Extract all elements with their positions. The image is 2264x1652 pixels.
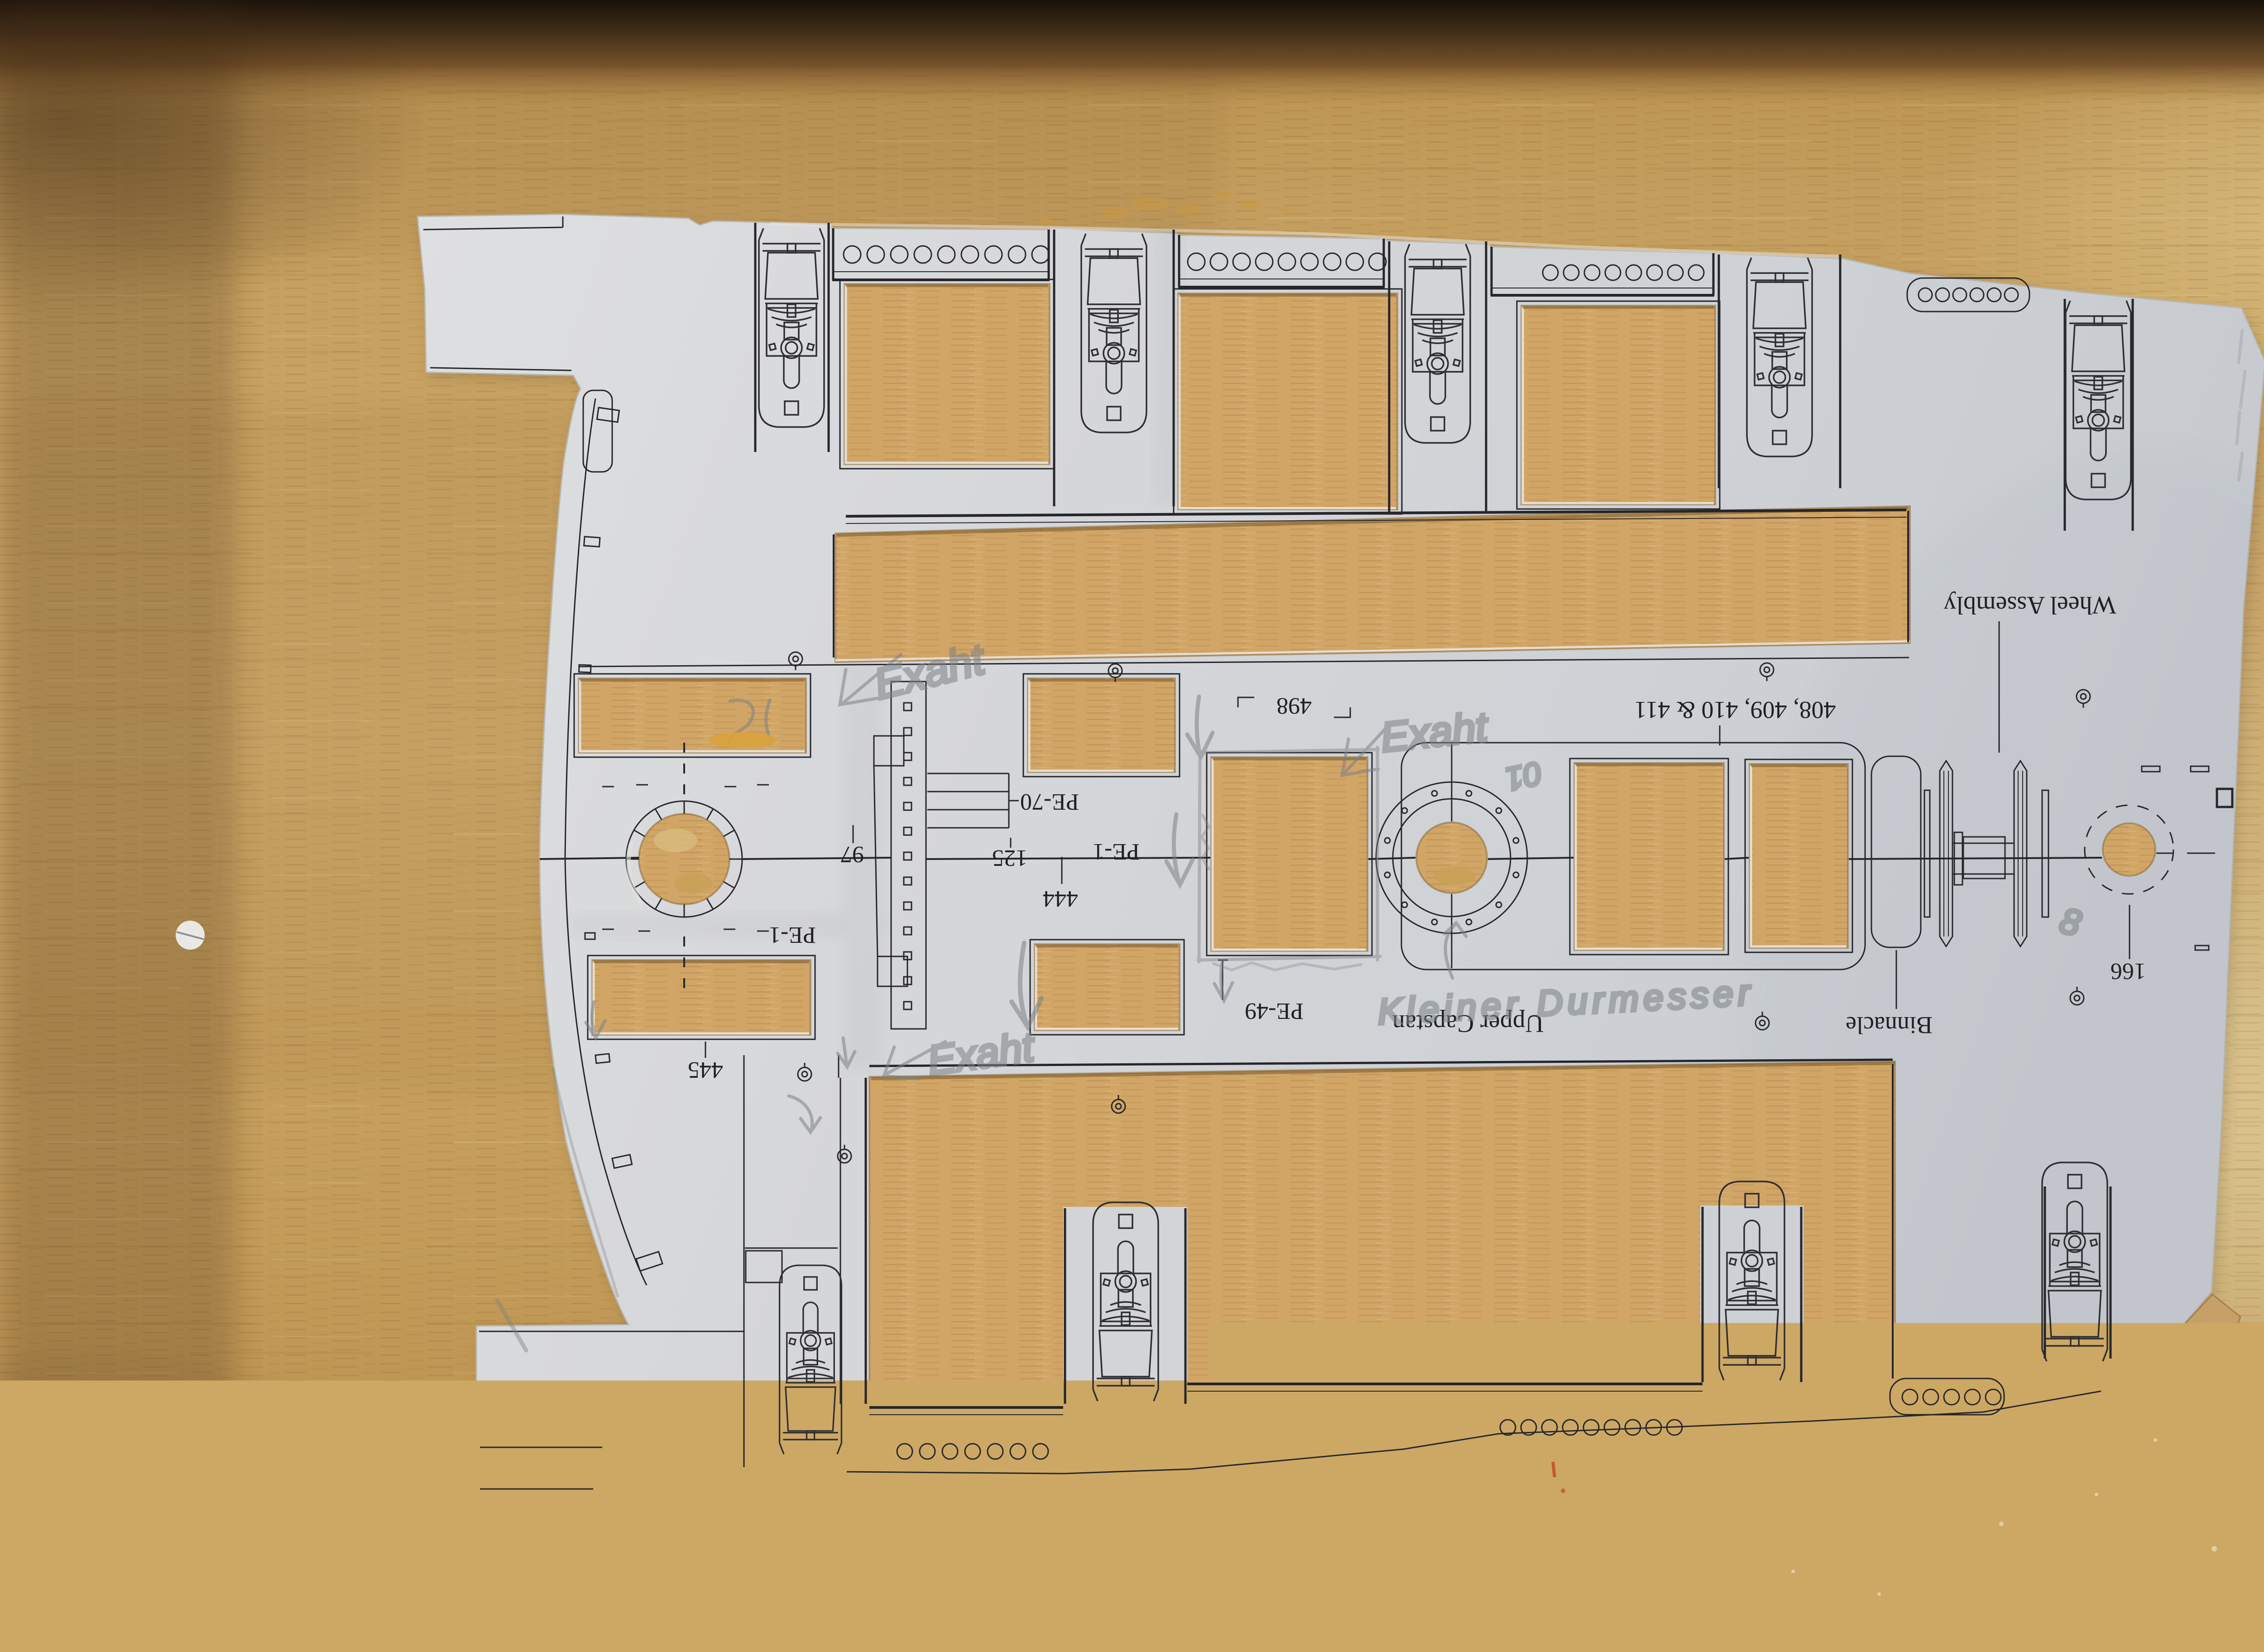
svg-text:125: 125 [992,845,1027,871]
svg-text:PE-1: PE-1 [769,922,816,948]
svg-text:01: 01 [1502,754,1545,797]
svg-text:498: 498 [1276,693,1312,719]
svg-text:Binnacle: Binnacle [1846,1012,1933,1039]
svg-text:PE-49: PE-49 [1245,998,1304,1024]
svg-text:Wheel Assembly: Wheel Assembly [1943,591,2116,619]
svg-text:408, 409, 410 & 411: 408, 409, 410 & 411 [1635,696,1836,724]
svg-text:445: 445 [688,1057,723,1083]
svg-text:PE-1: PE-1 [1093,839,1140,864]
svg-text:97: 97 [840,841,864,867]
svg-text:PE-70: PE-70 [1020,789,1079,815]
svg-text:166: 166 [2111,958,2146,984]
svg-text:444: 444 [1043,886,1078,912]
